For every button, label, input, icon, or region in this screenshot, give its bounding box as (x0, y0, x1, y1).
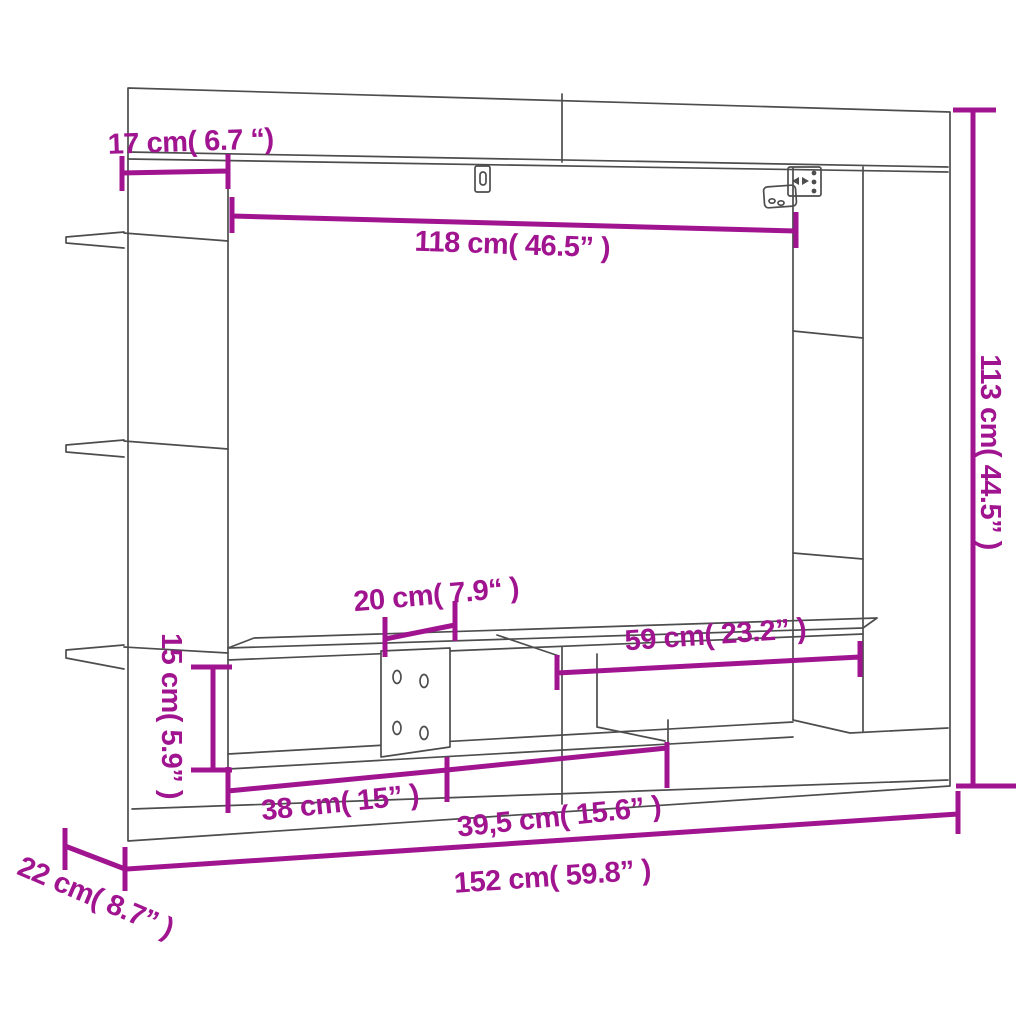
dimension-line (65, 828, 125, 870)
tv-cabinet-dimension-drawing: 17 cm( 6.7 “) 118 cm( 46.5” ) 113 cm( 44… (0, 0, 1024, 1024)
dimension-line (447, 742, 667, 788)
bench-right-base (793, 720, 948, 733)
right-column-shelves (793, 331, 863, 559)
dimension-inner-width: 118 cm( 46.5” ) (232, 197, 796, 264)
bench-center-box (381, 648, 450, 757)
left-side-shelves (66, 232, 228, 669)
dimension-label: 118 cm( 46.5” ) (414, 226, 611, 265)
product-dimension-diagram: 17 cm( 6.7 “) 118 cm( 46.5” ) 113 cm( 44… (0, 0, 1024, 1024)
dimension-label: 152 cm( 59.8” ) (453, 854, 652, 900)
cabinet-outline (66, 88, 950, 841)
dimension-label: 59 cm( 23.2” ) (624, 613, 807, 658)
keyhole-hanger-detail (475, 166, 490, 192)
dimension-top-offset: 17 cm( 6.7 “) (107, 123, 274, 191)
dimension-bracket-width: 20 cm( 7.9“ ) (352, 572, 520, 657)
dimension-middle-compartment-width: 39,5 cm( 15.6” ) (447, 742, 667, 844)
left-shelf-1 (66, 232, 228, 248)
dimension-depth: 22 cm( 8.7” ) (13, 828, 178, 945)
dimension-label: 20 cm( 7.9“ ) (352, 572, 520, 618)
dimension-right-shelf-width: 59 cm( 23.2” ) (557, 613, 860, 690)
bench-divider (562, 647, 668, 756)
dimension-line (191, 667, 232, 770)
media-bench-outline (132, 618, 948, 809)
dimension-label: 15 cm( 5.9” ) (155, 633, 187, 799)
bottom-skirt (132, 758, 948, 809)
dimension-label: 17 cm( 6.7 “) (107, 123, 274, 161)
dimension-label: 113 cm( 44.5” ) (974, 354, 1006, 550)
dimension-overall-height: 113 cm( 44.5” ) (953, 110, 1016, 786)
bracket-arrow-right-icon (802, 177, 809, 185)
left-shelf-2 (66, 440, 228, 457)
dimension-bench-height: 15 cm( 5.9” ) (155, 633, 232, 799)
right-column-dividers (793, 167, 863, 731)
dimension-label: 22 cm( 8.7” ) (13, 851, 178, 945)
